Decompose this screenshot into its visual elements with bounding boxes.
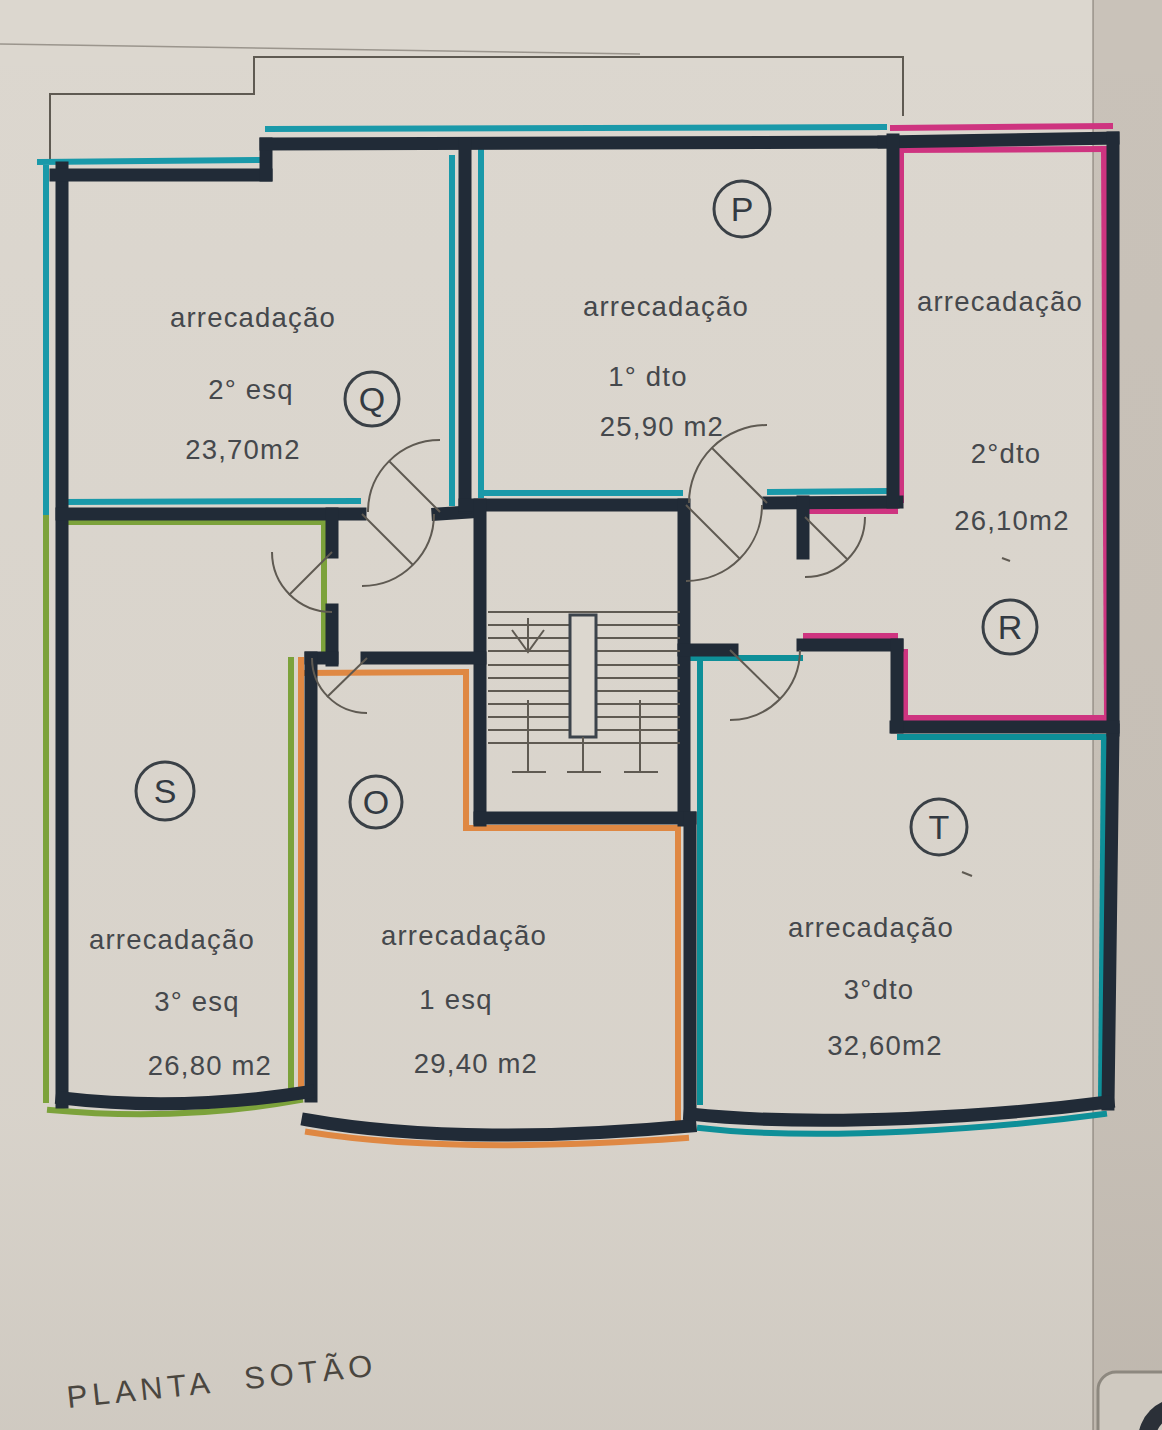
- room-Q-area: 23,70m2: [185, 434, 300, 465]
- room-O-unit: 1 esq: [419, 984, 492, 1015]
- stair-center-wall: [570, 615, 596, 737]
- room-S-area: 26,80 m2: [148, 1050, 272, 1081]
- letter-Q: Q: [359, 380, 385, 418]
- floor-plan-svg: Q P R S O T arrecadação 2° esq 23,70m2 a…: [0, 0, 1162, 1430]
- room-T-area: 32,60m2: [827, 1030, 942, 1061]
- room-P-name: arrecadação: [583, 291, 749, 322]
- room-P-area: 25,90 m2: [600, 411, 724, 442]
- room-P-unit: 1° dto: [608, 361, 687, 392]
- letter-S: S: [154, 772, 177, 810]
- logo-stamp: [1098, 1372, 1162, 1430]
- room-Q-unit: 2° esq: [208, 374, 293, 405]
- room-Q-name: arrecadação: [170, 302, 336, 333]
- room-T-unit: 3°dto: [844, 974, 915, 1005]
- room-T-name: arrecadação: [788, 912, 954, 943]
- room-S-name: arrecadação: [89, 924, 255, 955]
- room-O-area: 29,40 m2: [414, 1048, 538, 1079]
- letter-O: O: [363, 783, 389, 821]
- letter-T: T: [929, 808, 950, 846]
- floor-plan-page: Q P R S O T arrecadação 2° esq 23,70m2 a…: [0, 0, 1162, 1430]
- room-O-name: arrecadação: [381, 920, 547, 951]
- room-R-name: arrecadação: [917, 286, 1083, 317]
- room-R-unit: 2°dto: [971, 438, 1042, 469]
- room-S-unit: 3° esq: [154, 986, 239, 1017]
- letter-R: R: [998, 608, 1023, 646]
- room-R-area: 26,10m2: [954, 505, 1069, 536]
- letter-P: P: [731, 190, 754, 228]
